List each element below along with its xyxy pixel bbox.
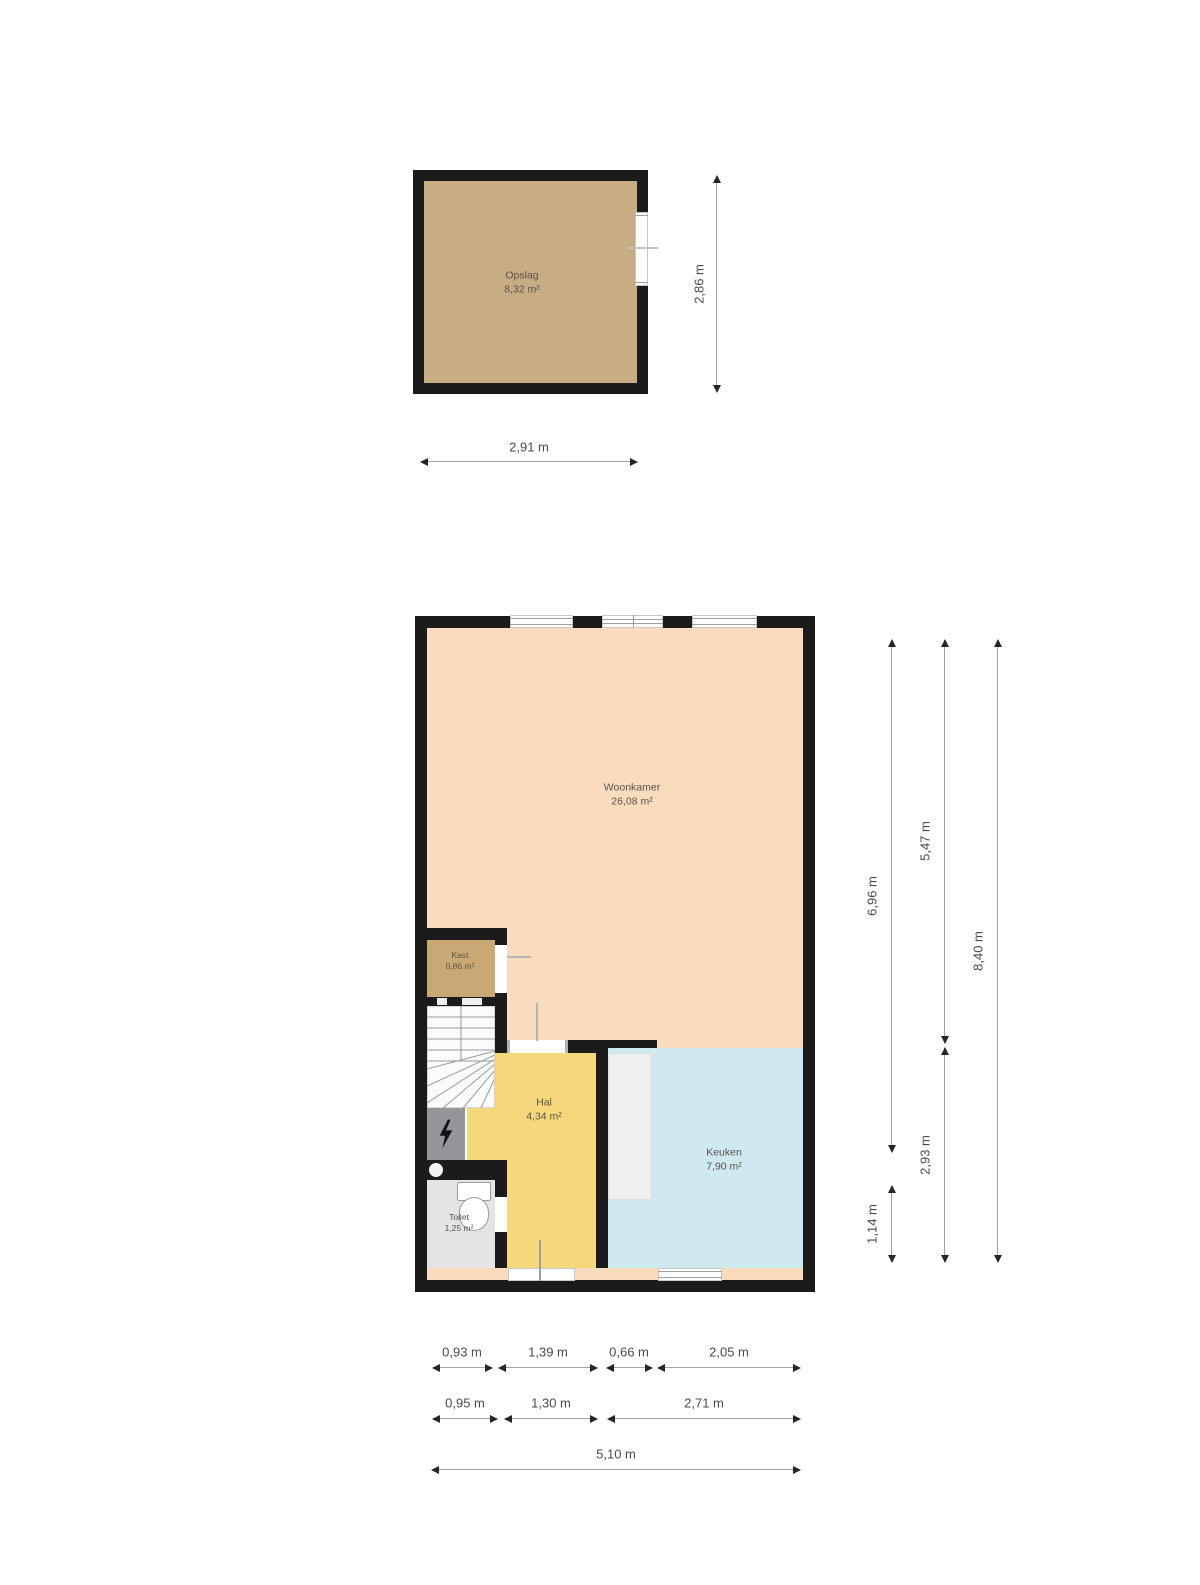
room-area-keuken: 7,90 m² xyxy=(706,1160,742,1174)
room-area-hal: 4,34 m² xyxy=(526,1110,562,1124)
dim-label-bottom-r2-s1: 0,95 m xyxy=(445,1396,485,1411)
dim-line-right-inner-top xyxy=(891,640,892,1152)
garden-french-door xyxy=(602,615,663,628)
room-name-toilet: Toilet xyxy=(445,1212,474,1223)
kast-bottom-wall-gap-right xyxy=(462,998,482,1005)
dim-line-bottom-r1-s3 xyxy=(607,1367,652,1368)
front-door-leaf xyxy=(539,1240,541,1281)
room-label-toilet: Toilet 1,25 m² xyxy=(445,1212,474,1234)
hal-floor-side xyxy=(465,1108,495,1160)
storage-door xyxy=(635,212,648,286)
room-area-toilet: 1,25 m² xyxy=(445,1223,474,1234)
dim-line-storage-height xyxy=(716,176,717,392)
room-label-woonkamer: Woonkamer 26,08 m² xyxy=(604,781,660,808)
room-label-keuken: Keuken 7,90 m² xyxy=(706,1146,742,1173)
dim-label-right-inner-top: 6,96 m xyxy=(865,876,880,916)
storage-door-leaf xyxy=(628,247,658,249)
room-name-opslag: Opslag xyxy=(504,269,540,283)
hal-keuken-wall xyxy=(596,1040,608,1268)
woonkamer-window-right xyxy=(692,615,757,628)
dim-label-bottom-total: 5,10 m xyxy=(596,1447,636,1462)
dim-line-right-inner-bottom xyxy=(891,1186,892,1262)
kitchen-counter xyxy=(608,1053,652,1200)
room-area-opslag: 8,32 m² xyxy=(504,283,540,297)
kast-door-opening xyxy=(495,945,507,993)
room-label-opslag: Opslag 8,32 m² xyxy=(504,269,540,296)
dim-line-right-mid-top xyxy=(944,640,945,1043)
kast-door-leaf xyxy=(507,956,531,958)
dim-label-right-total: 8,40 m xyxy=(971,931,986,971)
room-name-hal: Hal xyxy=(526,1096,562,1110)
dim-line-bottom-r1-s4 xyxy=(658,1367,800,1368)
hal-door-leaf xyxy=(536,1003,538,1041)
room-area-kast: 0,86 m² xyxy=(446,961,475,972)
dim-label-right-inner-bottom: 1,14 m xyxy=(865,1204,880,1244)
room-name-kast: Kast xyxy=(446,950,475,961)
lightning-bolt-icon xyxy=(437,1119,455,1149)
dim-label-bottom-r1-s4: 2,05 m xyxy=(709,1345,749,1360)
room-label-hal: Hal 4,34 m² xyxy=(526,1096,562,1123)
dim-label-storage-width: 2,91 m xyxy=(509,440,549,455)
dim-line-bottom-r2-s3 xyxy=(608,1418,800,1419)
hal-doorway-jamb-left xyxy=(507,1040,510,1053)
kast-top-wall xyxy=(427,928,507,940)
dim-label-storage-height: 2,86 m xyxy=(692,264,707,304)
meter-closet xyxy=(427,1108,465,1160)
hal-doorway-jamb-right xyxy=(565,1040,568,1053)
dim-line-bottom-r1-s1 xyxy=(433,1367,492,1368)
kast-bottom-wall-gap-left xyxy=(437,998,447,1005)
room-area-woonkamer: 26,08 m² xyxy=(604,795,660,809)
meter-closet-door-line xyxy=(465,1108,467,1160)
drain-icon xyxy=(429,1163,443,1177)
dim-line-bottom-total xyxy=(432,1469,800,1470)
dim-label-bottom-r1-s2: 1,39 m xyxy=(528,1345,568,1360)
front-door xyxy=(508,1268,575,1281)
room-label-kast: Kast 0,86 m² xyxy=(446,950,475,972)
keuken-window xyxy=(658,1268,722,1281)
hal-woonkamer-doorway xyxy=(507,1040,568,1053)
toilet-door-opening xyxy=(495,1197,507,1232)
dim-label-bottom-r2-s3: 2,71 m xyxy=(684,1396,724,1411)
dim-label-bottom-r1-s1: 0,93 m xyxy=(442,1345,482,1360)
staircase-treads xyxy=(427,1006,495,1108)
dim-label-bottom-r1-s3: 0,66 m xyxy=(609,1345,649,1360)
dim-line-bottom-r1-s2 xyxy=(499,1367,597,1368)
dim-line-bottom-r2-s2 xyxy=(505,1418,597,1419)
dim-line-right-total xyxy=(997,640,998,1262)
french-door-mullion xyxy=(633,615,635,628)
dim-label-bottom-r2-s2: 1,30 m xyxy=(531,1396,571,1411)
room-name-keuken: Keuken xyxy=(706,1146,742,1160)
dim-line-storage-width xyxy=(421,461,637,462)
dim-label-right-mid-bottom: 2,93 m xyxy=(918,1135,933,1175)
floorplan-page: Opslag 8,32 m² 2,86 m 2,91 m Kast 0,86 m… xyxy=(0,0,1200,1585)
dim-line-bottom-r2-s1 xyxy=(433,1418,497,1419)
staircase xyxy=(427,1006,495,1108)
room-name-woonkamer: Woonkamer xyxy=(604,781,660,795)
woonkamer-window-left xyxy=(510,615,573,628)
dim-label-right-mid-top: 5,47 m xyxy=(918,821,933,861)
dim-line-right-mid-bottom xyxy=(944,1048,945,1262)
hal-floor xyxy=(495,1053,596,1268)
